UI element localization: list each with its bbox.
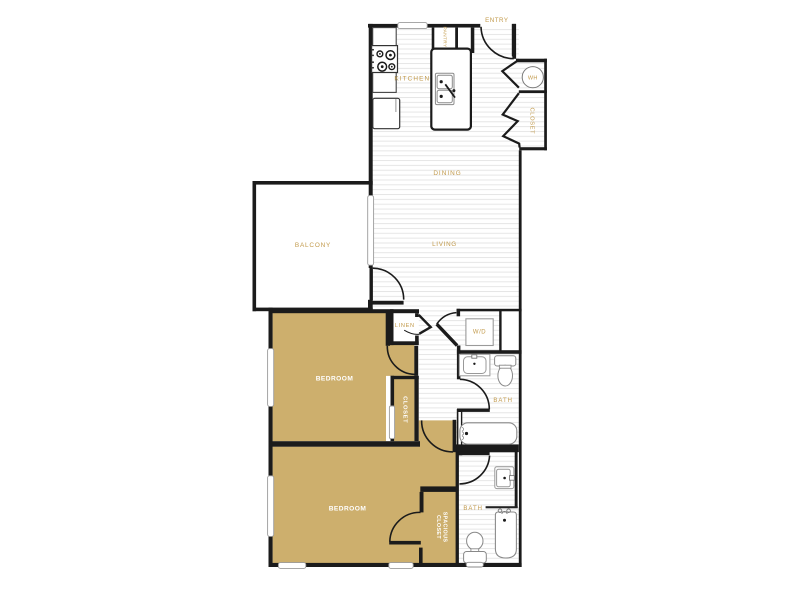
svg-text:WH: WH	[528, 75, 538, 81]
svg-text:LIVING: LIVING	[432, 241, 457, 248]
svg-text:BEDROOM: BEDROOM	[316, 376, 354, 383]
svg-text:BALCONY: BALCONY	[295, 242, 331, 249]
svg-text:BATH: BATH	[463, 506, 483, 512]
svg-text:ENTRY: ENTRY	[485, 17, 508, 24]
svg-text:PANTRY: PANTRY	[443, 27, 448, 48]
svg-text:SPACIOUS: SPACIOUS	[441, 512, 447, 543]
svg-text:BEDROOM: BEDROOM	[329, 506, 367, 513]
svg-text:CLOSET: CLOSET	[528, 108, 534, 135]
svg-text:BATH: BATH	[493, 398, 513, 404]
svg-text:DINING: DINING	[433, 170, 461, 177]
svg-text:W/D: W/D	[473, 330, 486, 336]
svg-text:CLOSET: CLOSET	[435, 515, 441, 539]
svg-text:CLOSET: CLOSET	[402, 396, 408, 423]
svg-text:KITCHEN: KITCHEN	[394, 76, 430, 83]
svg-text:LINEN: LINEN	[395, 323, 415, 329]
